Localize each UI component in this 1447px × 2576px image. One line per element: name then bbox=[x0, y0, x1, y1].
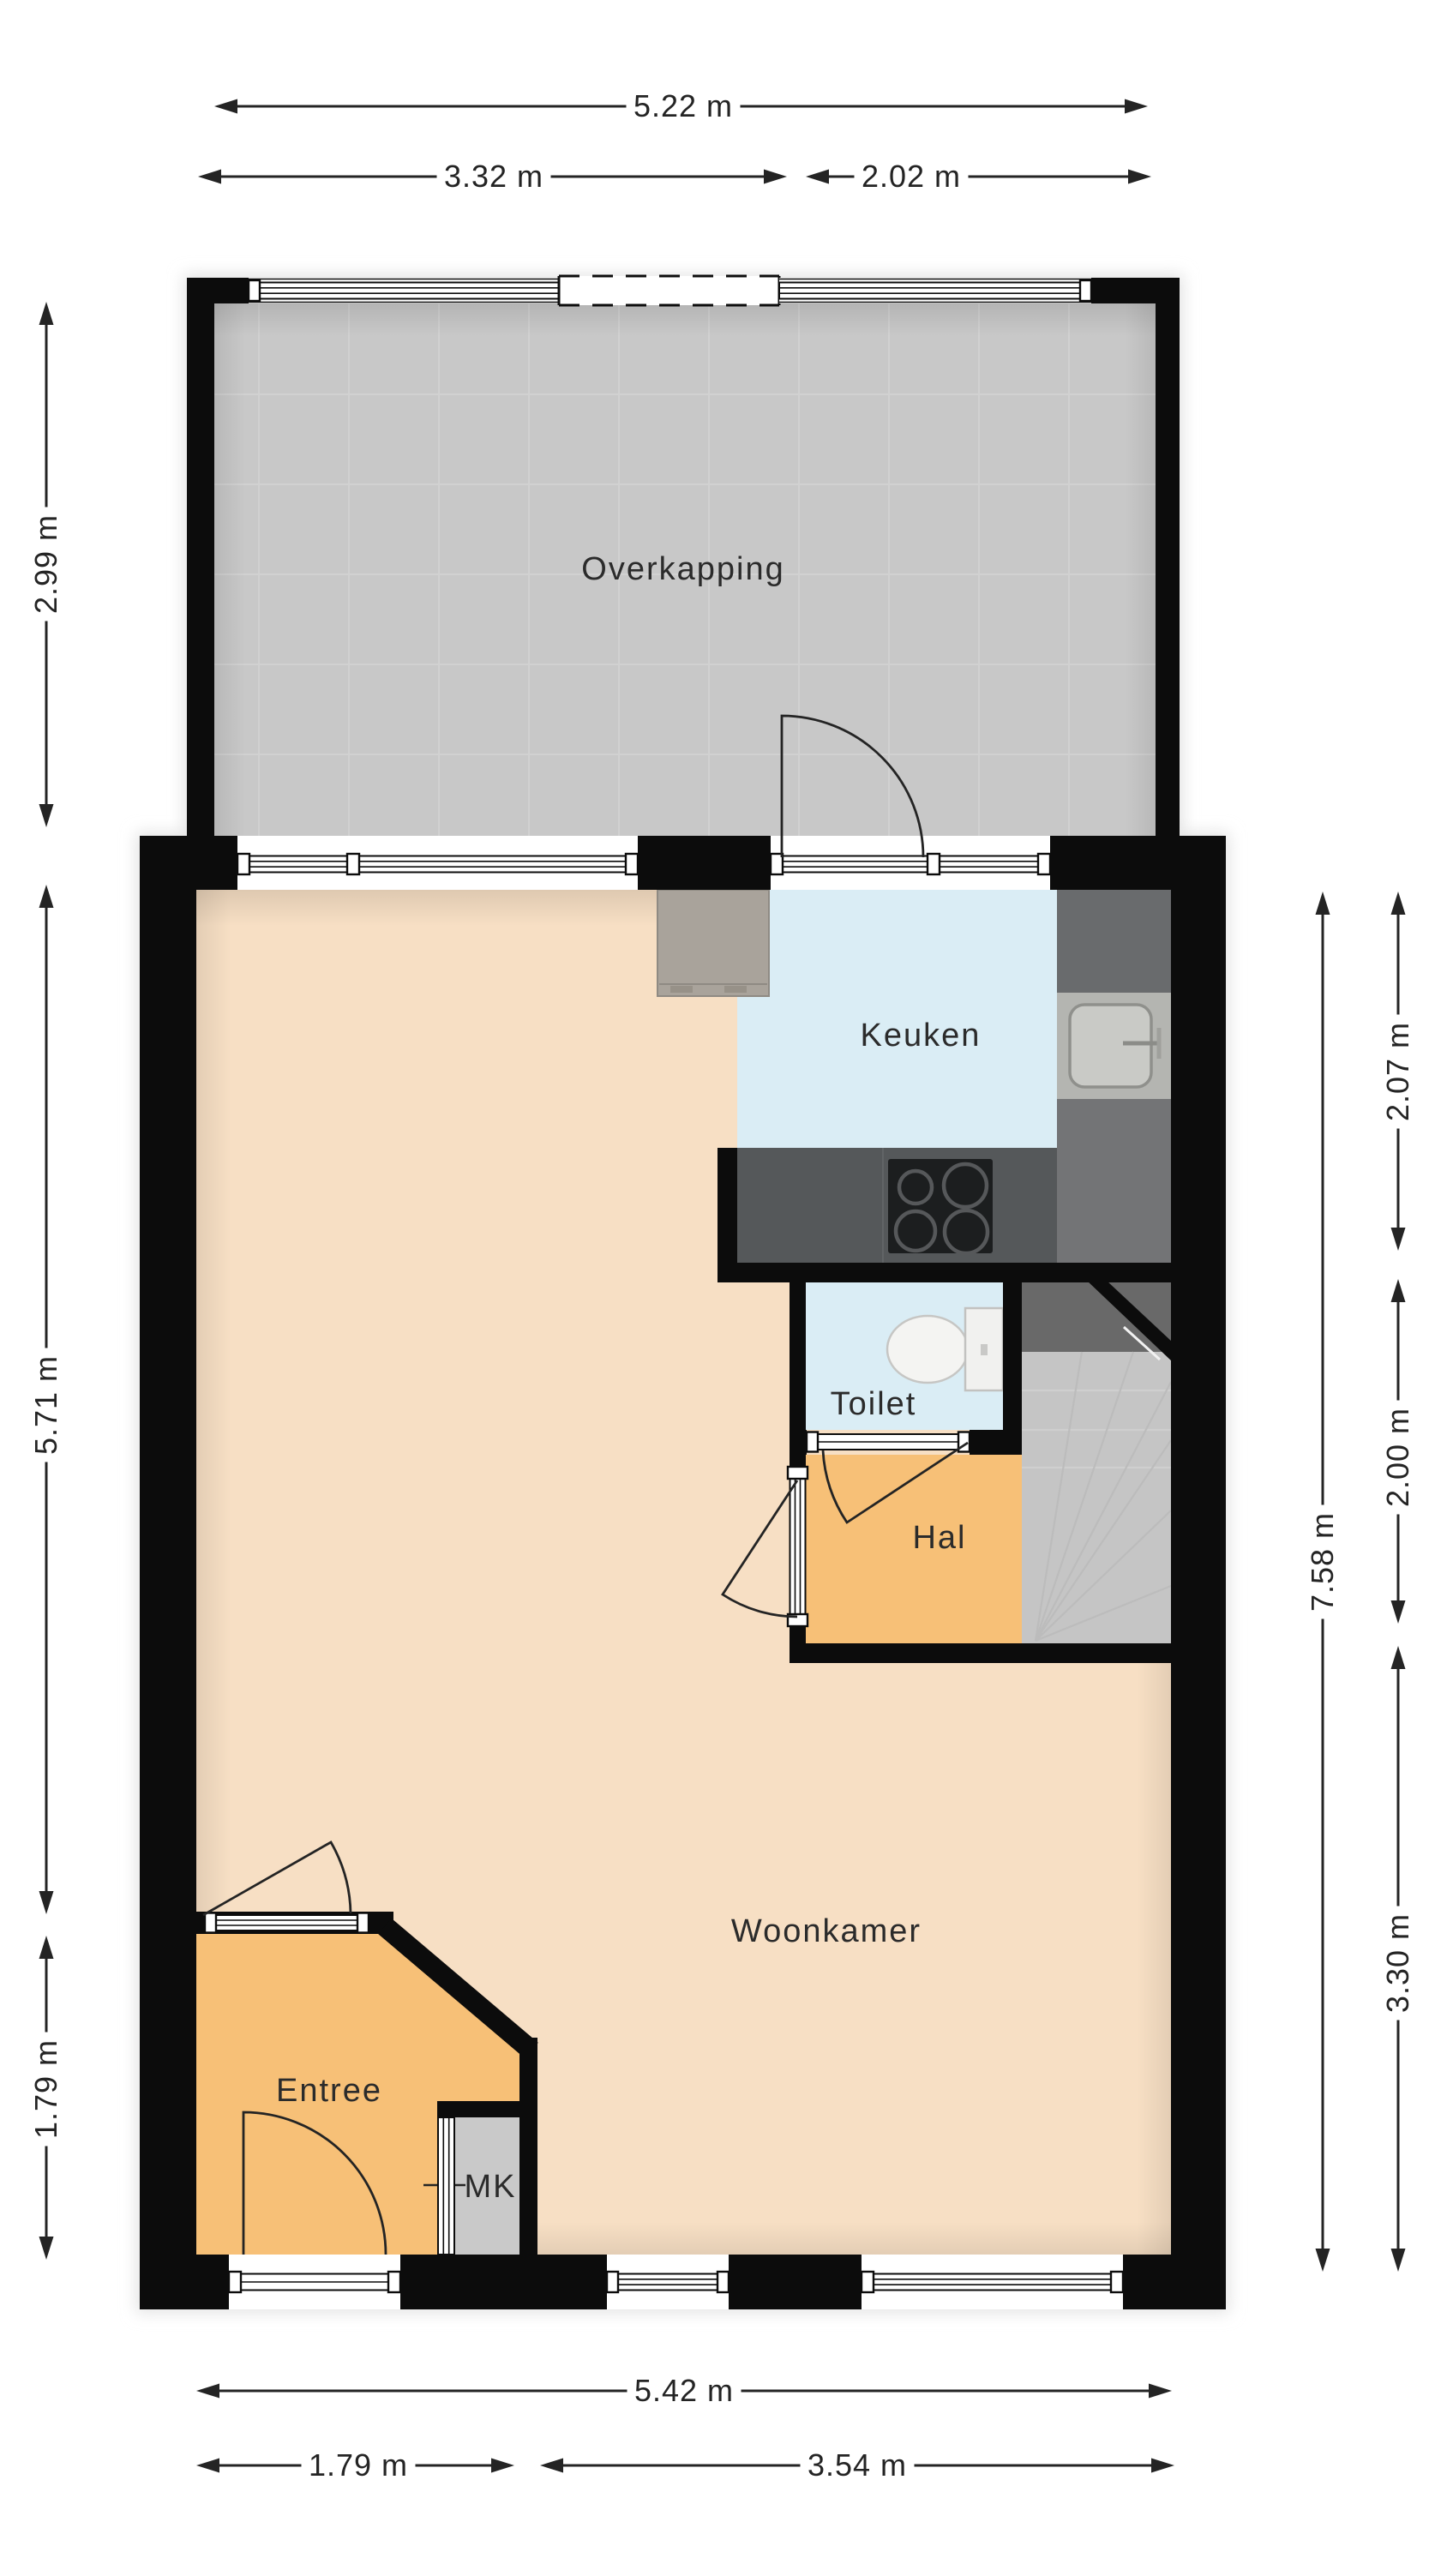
svg-text:Overkapping: Overkapping bbox=[581, 551, 784, 587]
svg-text:5.22 m: 5.22 m bbox=[633, 88, 733, 123]
svg-text:5.71 m: 5.71 m bbox=[28, 1355, 63, 1455]
svg-text:1.79 m: 1.79 m bbox=[309, 2447, 408, 2483]
svg-text:MK: MK bbox=[465, 2169, 517, 2205]
svg-text:2.02 m: 2.02 m bbox=[862, 159, 961, 194]
svg-text:3.30 m: 3.30 m bbox=[1380, 1913, 1415, 2013]
svg-text:2.07 m: 2.07 m bbox=[1380, 1022, 1415, 1121]
svg-text:3.32 m: 3.32 m bbox=[444, 159, 543, 194]
svg-text:Woonkamer: Woonkamer bbox=[731, 1913, 922, 1949]
svg-text:Entree: Entree bbox=[276, 2073, 382, 2109]
svg-text:3.54 m: 3.54 m bbox=[808, 2447, 907, 2483]
svg-text:Hal: Hal bbox=[912, 1520, 966, 1556]
svg-text:Toilet: Toilet bbox=[831, 1386, 917, 1422]
svg-text:5.42 m: 5.42 m bbox=[634, 2373, 734, 2408]
svg-text:Keuken: Keuken bbox=[861, 1018, 982, 1054]
svg-text:2.99 m: 2.99 m bbox=[28, 514, 63, 614]
svg-text:2.00 m: 2.00 m bbox=[1380, 1408, 1415, 1507]
svg-text:7.58 m: 7.58 m bbox=[1305, 1512, 1340, 1612]
svg-text:1.79 m: 1.79 m bbox=[28, 2039, 63, 2139]
